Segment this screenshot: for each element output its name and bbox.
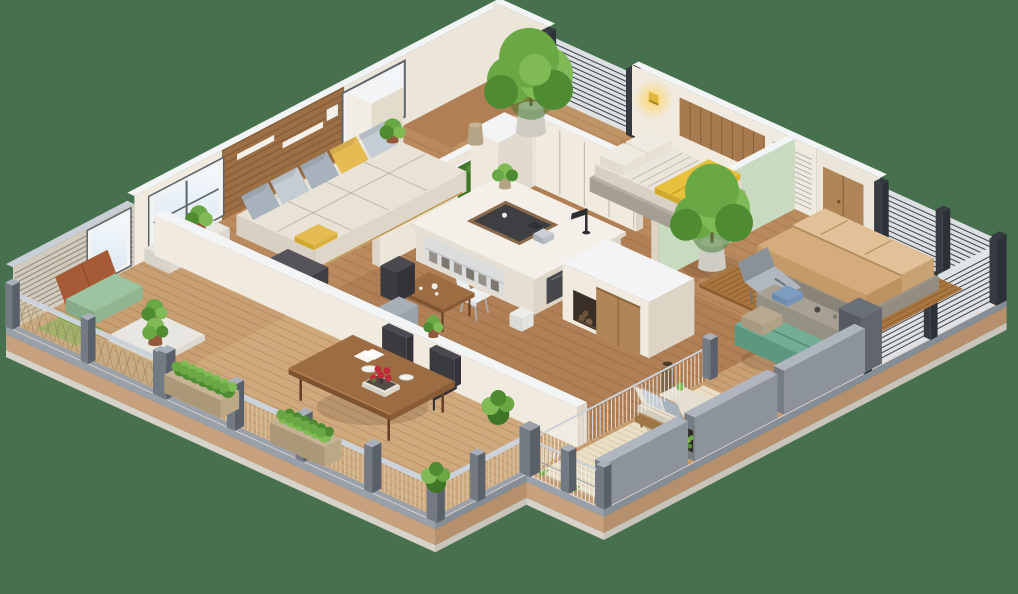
floorplan-scene <box>0 0 1018 594</box>
wall-lamp <box>633 79 673 119</box>
floorplan-3d-render <box>0 0 1018 594</box>
patio-vase <box>467 122 483 145</box>
